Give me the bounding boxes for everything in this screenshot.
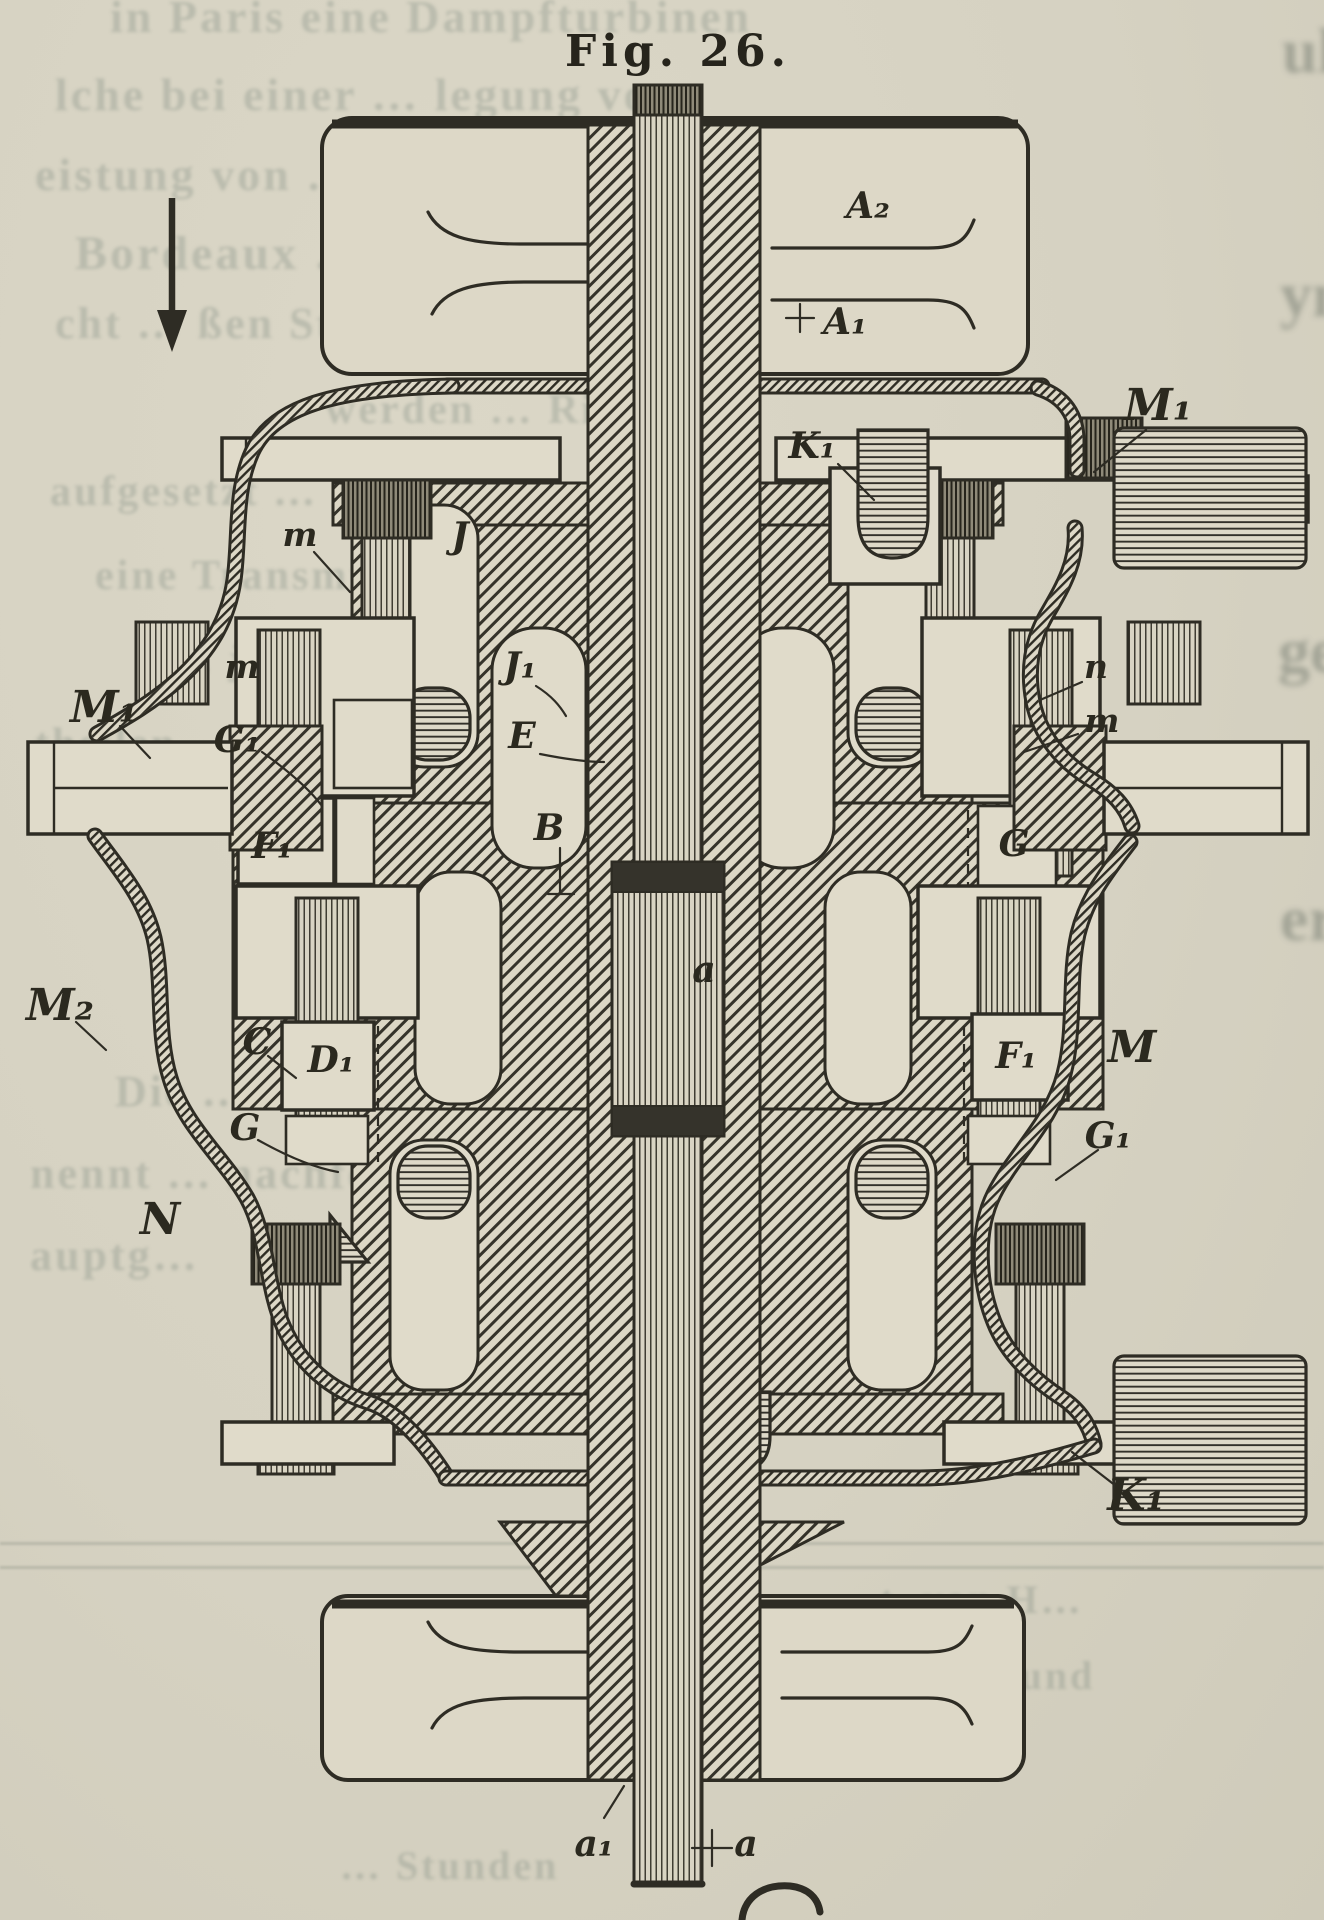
label-m2-left: M₂ [24,980,94,1031]
label-a-shaft-bottom: a [734,1823,757,1865]
label-g1-right: G₁ [1085,1115,1132,1157]
label-a-hub: a [692,949,715,991]
hub-slot [415,872,501,1104]
label-g-right: G [999,823,1030,865]
shaft-coupling-section [612,862,724,1136]
label-m-right-cap: M [1106,1022,1158,1073]
label-n-right: n [1084,647,1108,686]
label-g1-left: G₁ [214,719,261,761]
label-m1-top-right: M₁ [1122,380,1192,431]
label-e-center: E [507,715,536,757]
label-m1-left: M₁ [68,682,138,733]
page-bottom-letter-fragment [742,1886,820,1920]
scanned-book-page: in Paris eine Dampfturbinen lche bei ein… [0,0,1324,1920]
pulley-top-right [1114,428,1306,568]
shaft-end-cap [634,85,702,115]
coupling-key-band [612,862,724,892]
label-n-housing: N [138,1194,182,1245]
label-d1-left: D₁ [307,1039,355,1081]
rotation-arrow-icon [157,198,187,352]
label-k1-bottom-right: K₁ [1105,1470,1165,1521]
taper-pin-left-top [222,438,560,480]
label-a2-flywheel: A₂ [843,185,890,227]
label-a1-flywheel: A₁ [820,301,867,343]
wedge-shading [398,1146,470,1218]
label-m-right: m [1085,701,1120,740]
hub-slot [825,872,911,1104]
bolt-head [996,1224,1084,1284]
figure-title: Fig. 26. [565,26,791,77]
nut [286,1116,368,1164]
label-a1-shaft-bottom: a₁ [574,1823,613,1865]
label-m-left: m [225,647,260,686]
bolt-head [1128,622,1200,704]
taper-pin-left-bottom [222,1422,394,1464]
label-k1-top-right: K₁ [787,425,835,467]
label-g-left: G [230,1107,261,1149]
bolt-head [343,480,431,538]
label-c-left: C [243,1021,272,1063]
wedge-shading [856,1146,928,1218]
label-m-top-left: m [283,515,318,554]
label-f1-right: F₁ [994,1035,1036,1077]
label-j1-center: J₁ [498,645,537,687]
central-shaft [588,85,760,1885]
coupling-key-band [612,1106,724,1136]
label-f1-left: F₁ [250,825,292,867]
fig26-cross-section-drawing: Fig. 26. [0,0,1324,1920]
wedge-shading [856,688,928,760]
label-b-center: B [533,807,564,849]
